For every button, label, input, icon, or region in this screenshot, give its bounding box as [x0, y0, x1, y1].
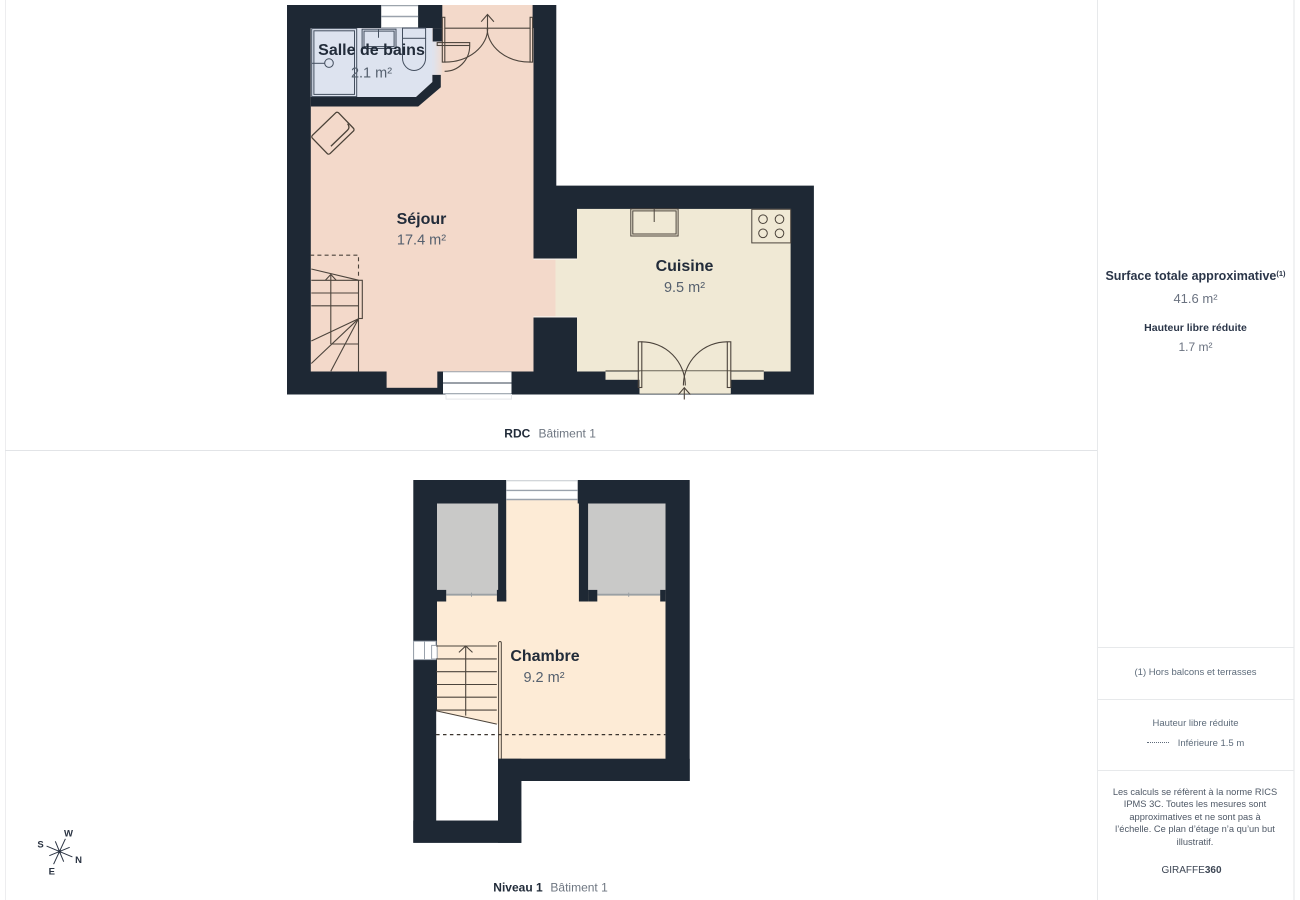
svg-text:Cuisine: Cuisine — [656, 258, 714, 275]
svg-text:W: W — [64, 829, 73, 840]
svg-text:S: S — [37, 840, 43, 851]
svg-text:Bâtiment 1: Bâtiment 1 — [539, 427, 597, 441]
svg-text:E: E — [49, 867, 55, 878]
svg-text:2.1 m²: 2.1 m² — [351, 66, 392, 82]
svg-text:RDC: RDC — [504, 427, 530, 441]
svg-text:Séjour: Séjour — [397, 211, 447, 228]
svg-text:Salle de bains: Salle de bains — [318, 42, 425, 59]
svg-text:Chambre: Chambre — [510, 648, 579, 665]
svg-text:Niveau 1: Niveau 1 — [493, 881, 543, 895]
svg-text:N: N — [75, 855, 82, 866]
svg-text:9.5 m²: 9.5 m² — [664, 280, 705, 296]
svg-text:17.4 m²: 17.4 m² — [397, 233, 446, 249]
svg-text:Bâtiment 1: Bâtiment 1 — [550, 881, 608, 895]
svg-text:9.2 m²: 9.2 m² — [523, 670, 564, 686]
